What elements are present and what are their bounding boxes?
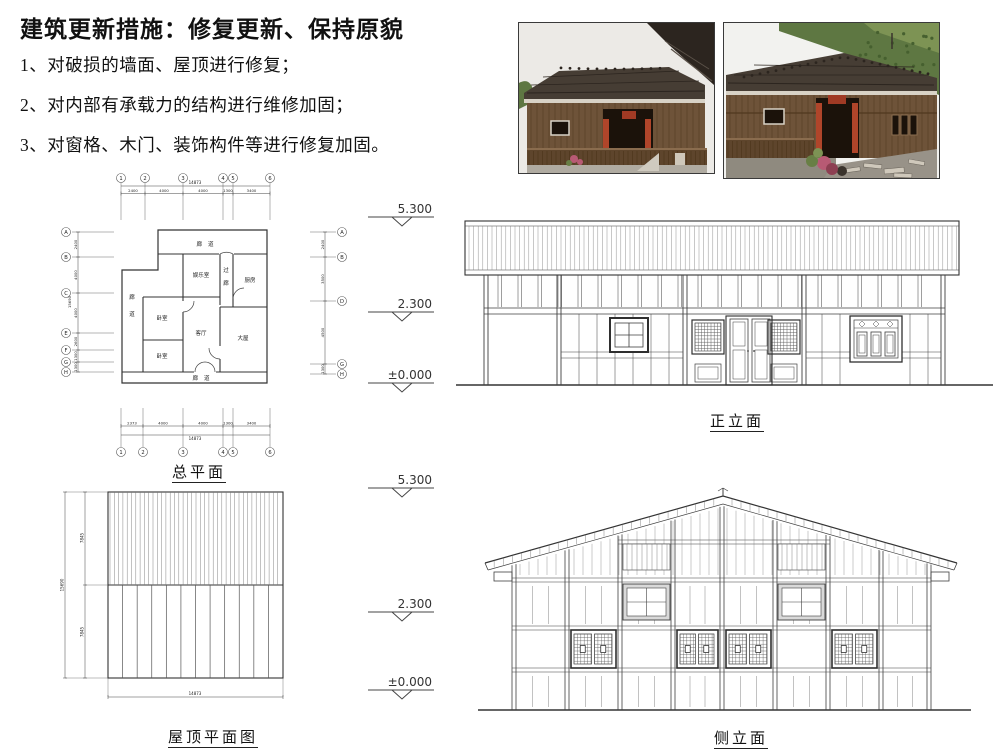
svg-text:廊道: 廊道 <box>192 374 215 382</box>
svg-text:15690: 15690 <box>67 295 72 308</box>
page-title: 建筑更新措施：修复更新、保持原貌 <box>20 10 404 44</box>
level-marker: 5.300 <box>364 201 438 234</box>
svg-text:15690: 15690 <box>60 578 65 591</box>
svg-text:道: 道 <box>129 310 135 318</box>
svg-text:4000: 4000 <box>159 188 169 193</box>
svg-text:4: 4 <box>221 176 225 182</box>
svg-text:过: 过 <box>223 266 229 274</box>
svg-text:2: 2 <box>143 176 146 182</box>
svg-text:2400: 2400 <box>73 239 78 249</box>
svg-text:5: 5 <box>231 450 234 456</box>
side-elevation-drawing <box>450 478 995 730</box>
svg-text:2400: 2400 <box>320 239 325 249</box>
svg-text:4000: 4000 <box>73 270 78 280</box>
svg-text:3400: 3400 <box>247 188 257 193</box>
svg-text:2: 2 <box>141 450 144 456</box>
svg-text:D: D <box>340 299 344 305</box>
svg-text:客厅: 客厅 <box>195 329 207 337</box>
svg-text:14873: 14873 <box>189 691 202 696</box>
svg-text:±0.000: ±0.000 <box>388 675 432 689</box>
measure-item-3: 3、对窗格、木门、装饰构件等进行修复加固。 <box>20 132 389 157</box>
svg-text:E: E <box>64 331 67 337</box>
svg-text:G: G <box>340 362 344 368</box>
svg-text:B: B <box>340 255 344 261</box>
svg-text:4000: 4000 <box>158 421 168 426</box>
svg-text:厨房: 厨房 <box>244 276 256 284</box>
svg-text:4000: 4000 <box>198 421 208 426</box>
roof-plan-drawing: 156907845784514873 <box>58 482 358 712</box>
svg-text:2.300: 2.300 <box>398 297 432 311</box>
svg-text:F: F <box>65 348 68 354</box>
svg-text:A: A <box>64 230 68 236</box>
side-elevation-label: 侧立面 <box>714 731 768 749</box>
front-elevation-label: 正立面 <box>710 414 764 432</box>
svg-text:2600: 2600 <box>73 336 78 346</box>
measures-list: 1、对破损的墙面、屋顶进行修复； 2、对内部有承载力的结构进行维修加固； 3、对… <box>20 52 389 172</box>
svg-text:3400: 3400 <box>247 421 257 426</box>
svg-text:14873: 14873 <box>189 180 202 185</box>
floor-plan-drawing: 1234561487324004000400013003400123456237… <box>58 168 398 480</box>
svg-text:1300: 1300 <box>320 364 325 374</box>
svg-text:1300: 1300 <box>223 421 233 426</box>
roof-plan-label: 屋顶平面图 <box>168 730 258 748</box>
svg-text:±0.000: ±0.000 <box>388 368 432 382</box>
svg-text:3: 3 <box>181 450 184 456</box>
svg-text:1300: 1300 <box>223 188 233 193</box>
svg-text:5: 5 <box>231 176 234 182</box>
svg-text:4: 4 <box>221 450 225 456</box>
svg-text:2373: 2373 <box>127 421 137 426</box>
svg-text:1: 1 <box>119 450 122 456</box>
svg-text:2400: 2400 <box>128 188 138 193</box>
floor-plan-label: 总平面 <box>172 465 226 483</box>
svg-text:6: 6 <box>268 450 271 456</box>
svg-text:1: 1 <box>119 176 122 182</box>
svg-text:2.300: 2.300 <box>398 597 432 611</box>
svg-text:5.300: 5.300 <box>398 473 432 487</box>
svg-text:廊道: 廊道 <box>196 240 219 248</box>
svg-text:4000: 4000 <box>198 188 208 193</box>
svg-text:廊: 廊 <box>129 293 135 301</box>
svg-text:卧室: 卧室 <box>156 352 168 360</box>
svg-text:B: B <box>64 255 68 261</box>
roof-plan-caption: 屋顶平面图 <box>168 726 258 747</box>
front-elevation-caption: 正立面 <box>710 410 764 431</box>
level-marker: ±0.000 <box>364 367 438 400</box>
photo-building-exterior-1 <box>518 22 715 174</box>
svg-text:7845: 7845 <box>80 532 85 543</box>
svg-text:7845: 7845 <box>80 626 85 637</box>
front-elevation-drawing <box>452 198 997 413</box>
side-elevation-caption: 侧立面 <box>714 727 768 748</box>
svg-text:H: H <box>340 372 344 378</box>
svg-text:H: H <box>64 370 68 376</box>
svg-text:卧室: 卧室 <box>156 314 168 322</box>
svg-text:1300: 1300 <box>73 351 78 361</box>
level-marker: 2.300 <box>364 296 438 329</box>
level-marker: ±0.000 <box>364 674 438 707</box>
svg-text:4500: 4500 <box>320 327 325 337</box>
measure-item-2: 2、对内部有承载力的结构进行维修加固； <box>20 92 389 117</box>
slide: 建筑更新措施：修复更新、保持原貌 1、对破损的墙面、屋顶进行修复； 2、对内部有… <box>0 0 1000 750</box>
svg-text:1300: 1300 <box>73 362 78 372</box>
svg-text:G: G <box>64 360 68 366</box>
svg-text:4000: 4000 <box>73 308 78 318</box>
svg-text:廊: 廊 <box>223 279 229 287</box>
svg-text:6: 6 <box>268 176 271 182</box>
floor-plan-caption: 总平面 <box>172 461 226 482</box>
level-marker: 2.300 <box>364 596 438 629</box>
svg-text:3: 3 <box>181 176 184 182</box>
svg-text:A: A <box>340 230 344 236</box>
svg-text:娱乐室: 娱乐室 <box>193 271 210 279</box>
photo-building-exterior-2 <box>723 22 940 179</box>
measure-item-1: 1、对破损的墙面、屋顶进行修复； <box>20 52 389 77</box>
level-marker: 5.300 <box>364 472 438 505</box>
svg-text:大屋: 大屋 <box>237 334 249 342</box>
svg-text:5.300: 5.300 <box>398 202 432 216</box>
svg-text:14873: 14873 <box>189 436 202 441</box>
svg-text:3500: 3500 <box>320 274 325 284</box>
